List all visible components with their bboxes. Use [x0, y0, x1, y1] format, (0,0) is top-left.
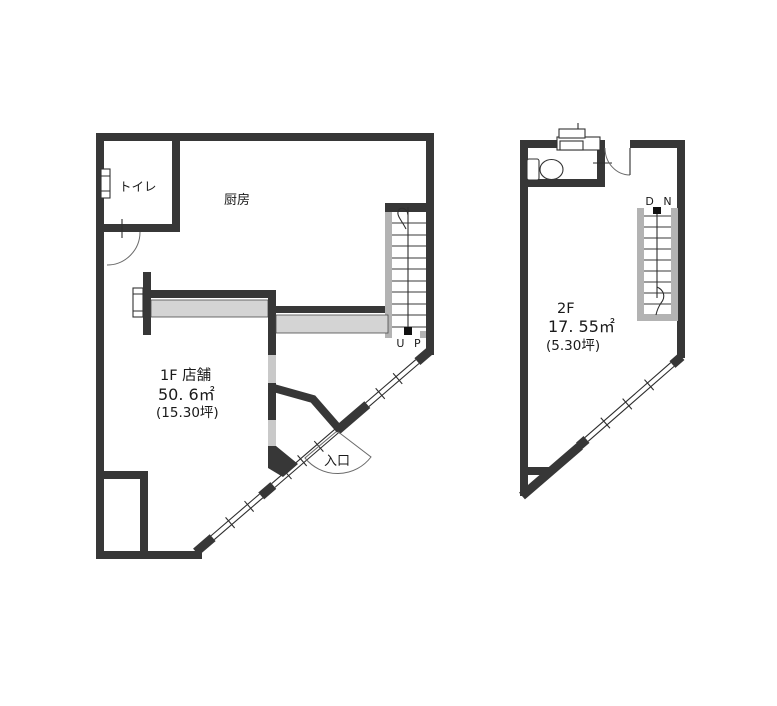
partition-opening-1 [268, 355, 276, 383]
kitchen-label: 厨房 [224, 192, 250, 208]
f2-window-glass [585, 363, 674, 442]
counter-lower-wall [276, 306, 385, 313]
partition-wall-seg1 [268, 333, 276, 355]
f1-toilet-sink-fixture [101, 169, 110, 198]
counter-lower-top [276, 315, 388, 333]
f1-diag-wall-seg1 [193, 534, 216, 555]
toilet-label: トイレ [119, 179, 157, 194]
floor2-title: 2F [557, 301, 575, 317]
floorplan-page: トイレ 厨房 1F 店舗 50. 6㎡ (15.30坪) 入口 U P [0, 0, 777, 706]
counter-step-wall [268, 290, 276, 333]
floor2-plan: D N 2F 17. 55㎡ (5.30坪) [520, 123, 686, 496]
f2-storefront-diagonal [574, 351, 686, 451]
up-marker-square [404, 327, 412, 335]
dn-label: D N [645, 195, 674, 208]
vestibule-angled-wall [270, 387, 340, 430]
f2-wall-left [520, 140, 528, 496]
f1-stairs-wall-top [385, 203, 426, 212]
toilet-tank [527, 159, 539, 180]
floor1-area-m2: 50. 6㎡ [158, 385, 215, 404]
partition-opening-2 [268, 420, 276, 447]
f2-window-mullion-ticks [601, 380, 654, 429]
f1-window-glass-1 [211, 494, 263, 540]
f2-stairs-bottom-band [637, 314, 678, 321]
f2-stairs-right-band [671, 208, 678, 314]
f2-sink-tank [559, 129, 585, 138]
f1-toilet-wall-right [172, 133, 180, 232]
toilet-bowl [540, 160, 563, 180]
f1-wall-bottom [96, 551, 202, 559]
floor1-area-tsubo: (15.30坪) [156, 405, 219, 421]
up-label: U P [396, 337, 423, 350]
f1-wall-right [426, 133, 434, 355]
floor1-plan: トイレ 厨房 1F 店舗 50. 6㎡ (15.30坪) 入口 U P [96, 133, 436, 559]
f2-sink-basin [560, 141, 583, 150]
f1-window-glass-3 [366, 360, 419, 407]
f2-bottom-stub-wall [520, 467, 550, 475]
floor1-title: 1F 店舗 [160, 367, 211, 384]
f2-wall-top-right [630, 140, 685, 148]
f2-wall-right [677, 140, 685, 358]
f2-toilet-wall-right [597, 148, 605, 187]
f2-room-door-arc [605, 148, 630, 175]
counter-upper-wall [151, 290, 268, 298]
counter-upper-top [151, 300, 268, 317]
floor2-area-tsubo: (5.30坪) [546, 338, 600, 354]
floor2-area-m2: 17. 55㎡ [548, 317, 615, 336]
partition-corner-junction [268, 446, 298, 477]
dn-marker-square [653, 207, 661, 214]
f2-stairs-left-band [637, 208, 644, 321]
nook-wall-right [140, 471, 148, 559]
entrance-label: 入口 [324, 454, 350, 469]
counter-left-stub-wall [143, 272, 151, 335]
counter-left-fixture [133, 288, 143, 317]
f1-window-mullion-ticks-3 [376, 373, 403, 399]
floorplan-drawing: トイレ 厨房 1F 店舗 50. 6㎡ (15.30坪) 入口 U P [0, 0, 777, 706]
f1-diag-wall-seg2 [258, 482, 276, 499]
f1-window-mullion-ticks-1 [226, 501, 254, 528]
f1-stair-treads [392, 223, 426, 327]
f1-wall-top [96, 133, 434, 141]
f1-toilet-wall-bottom [96, 224, 180, 232]
kitchen-door-arc [107, 232, 140, 265]
